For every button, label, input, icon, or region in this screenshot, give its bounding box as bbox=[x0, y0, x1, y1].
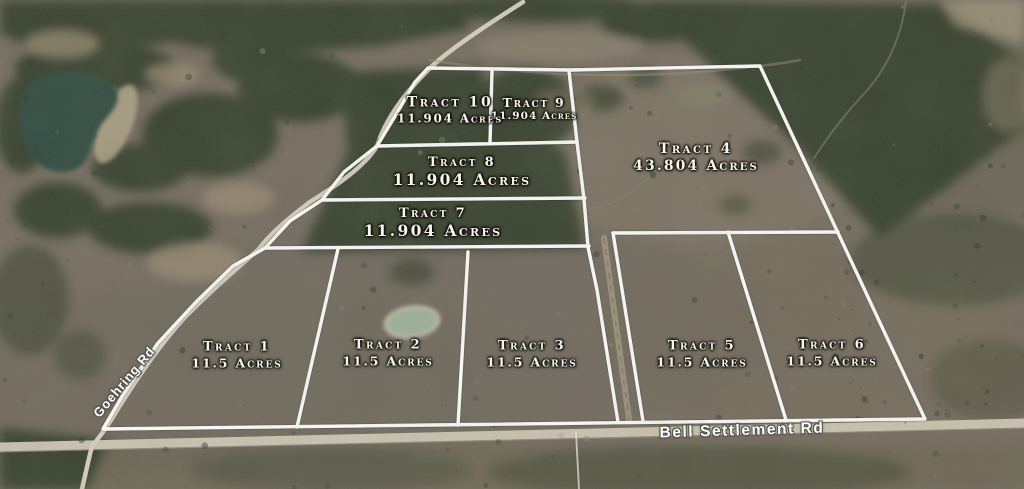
terrain-grain bbox=[0, 0, 1024, 489]
satellite-terrain bbox=[0, 0, 1024, 489]
aerial-plat-map: Tract 1 11.5 Acres Tract 2 11.5 Acres Tr… bbox=[0, 0, 1024, 489]
